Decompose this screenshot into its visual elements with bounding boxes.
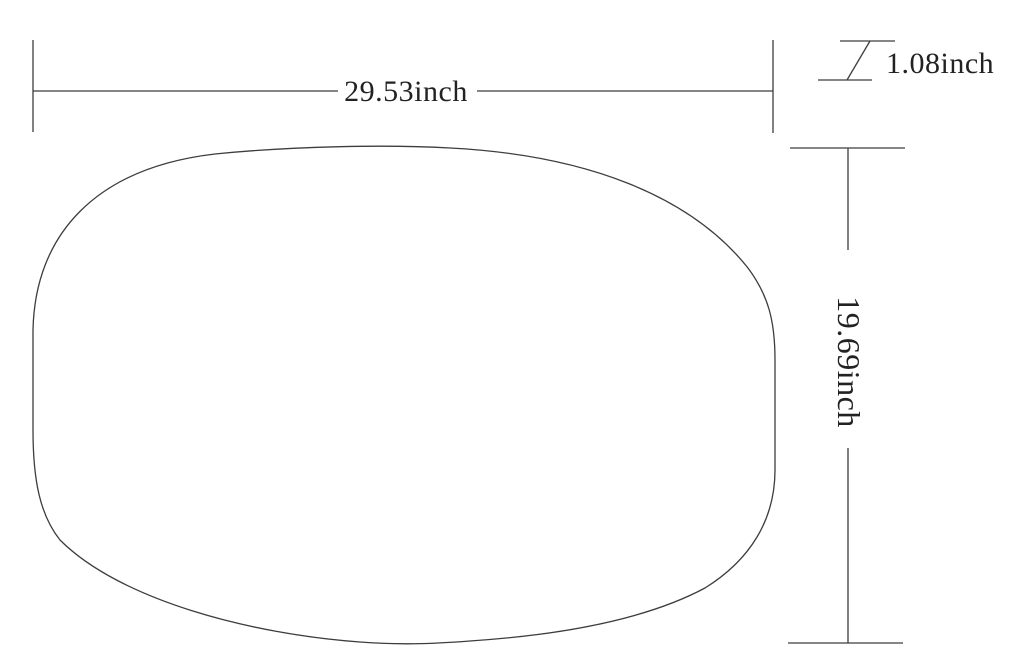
thickness-dimension-label: 1.08inch: [886, 47, 994, 80]
dimension-labels: 29.53inch 1.08inch 19.69inch: [344, 47, 994, 428]
height-dimension-label: 19.69inch: [831, 296, 867, 428]
width-dimension-label: 29.53inch: [344, 75, 468, 108]
drawing-linework: [33, 40, 905, 644]
technical-drawing-page: 29.53inch 1.08inch 19.69inch: [0, 0, 1024, 664]
thickness-symbol: [818, 41, 895, 80]
shape-outline: [33, 146, 775, 644]
drawing-canvas: 29.53inch 1.08inch 19.69inch: [0, 0, 1024, 664]
thickness-symbol-diagonal: [847, 41, 870, 80]
